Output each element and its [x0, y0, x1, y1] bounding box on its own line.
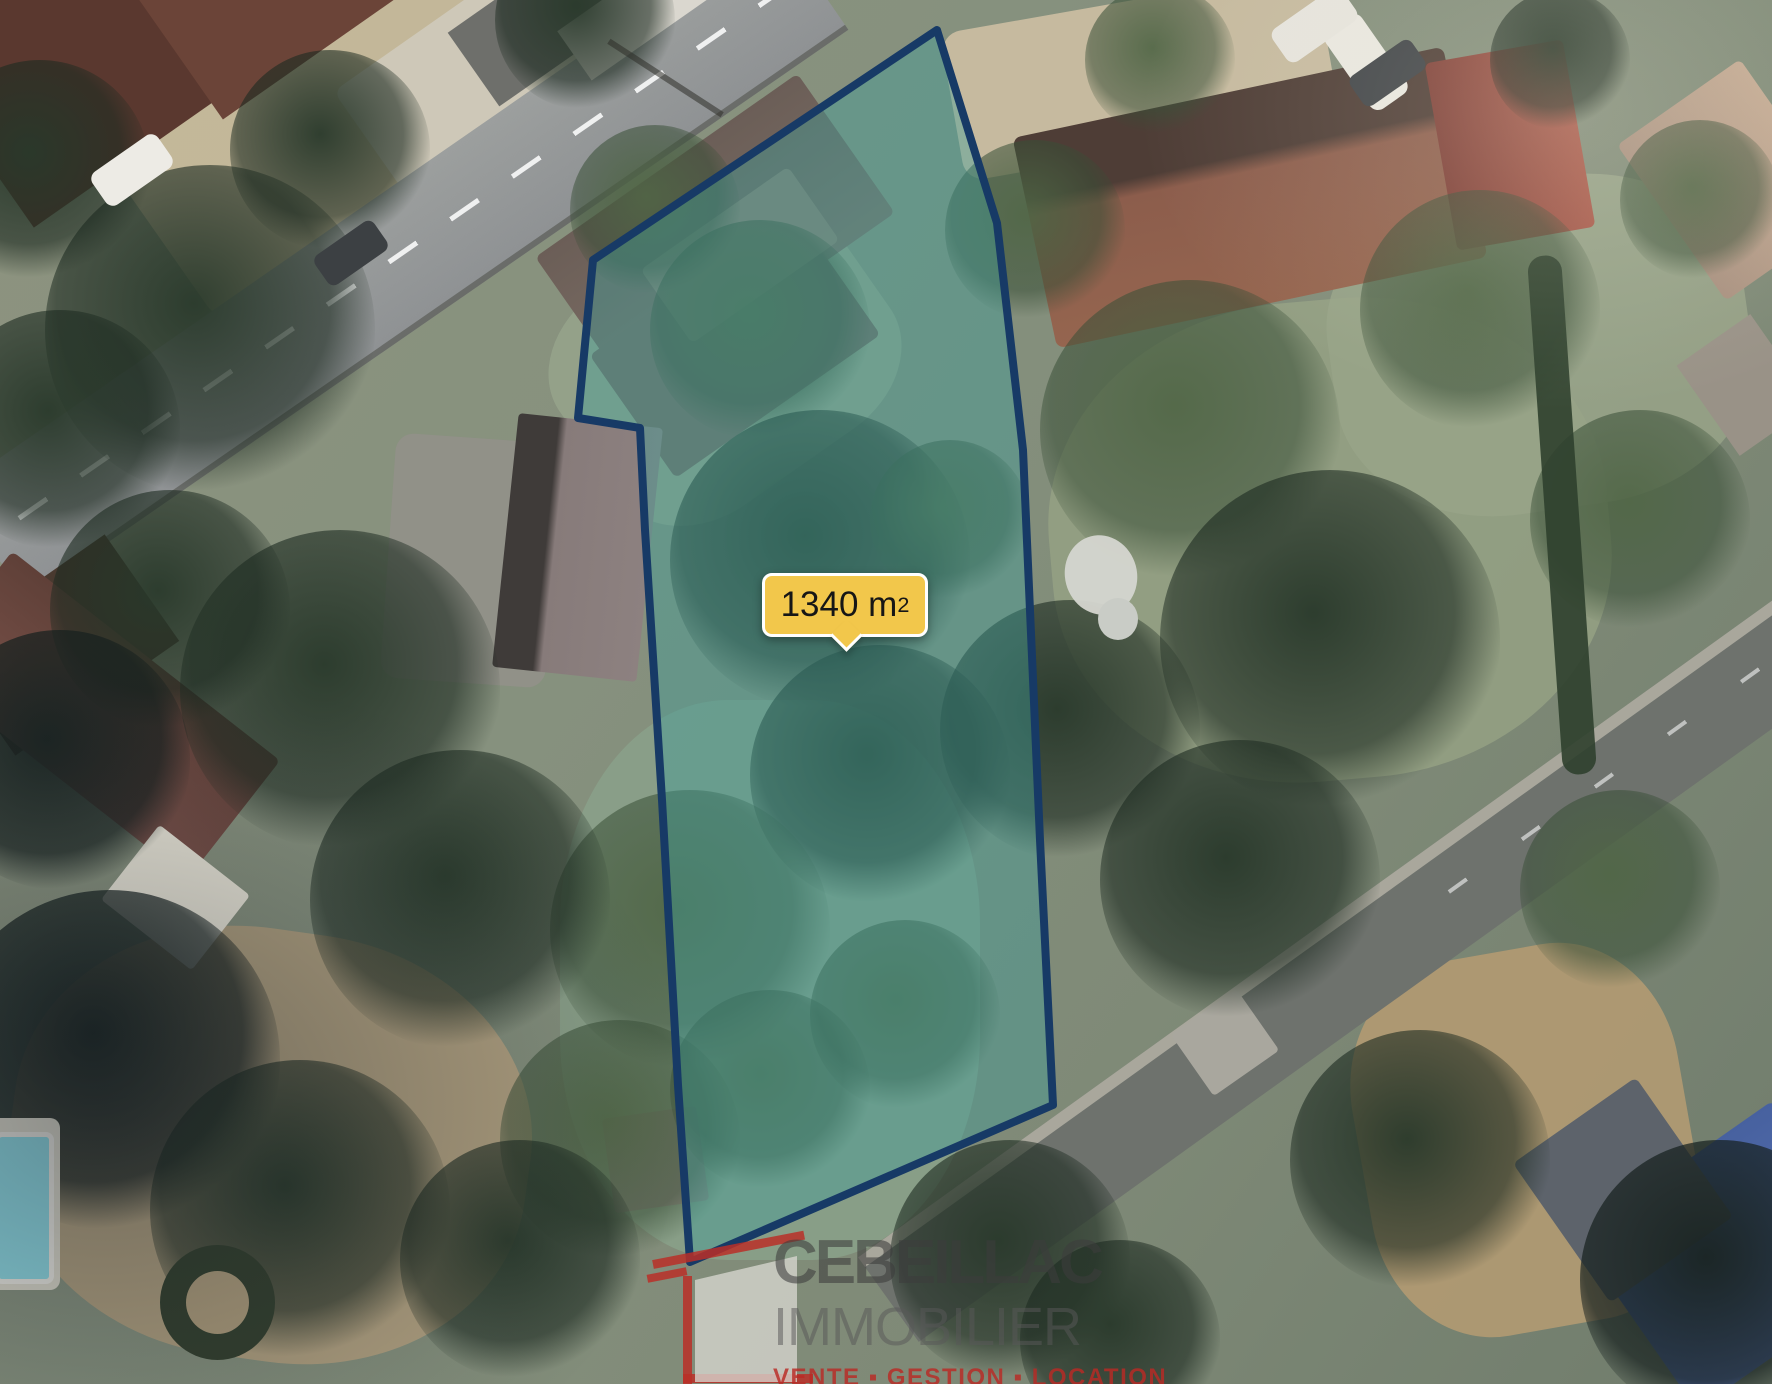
watermark: CEBEILLAC IMMOBILIER VENTE ▪ GESTION ▪ L… — [645, 1234, 1245, 1384]
watermark-text: CEBEILLAC IMMOBILIER VENTE ▪ GESTION ▪ L… — [773, 1232, 1167, 1384]
area-label-superscript: 2 — [897, 592, 909, 618]
logo-wall-line — [683, 1276, 692, 1384]
area-label-text: 1340 m — [781, 585, 898, 625]
agency-tagline: VENTE ▪ GESTION ▪ LOCATION — [773, 1364, 1167, 1384]
satellite-map-view: 1340 m2 CEBEILLAC IMMOBILIER VENTE ▪ GES… — [0, 0, 1772, 1384]
agency-sector: IMMOBILIER — [773, 1300, 1167, 1354]
parcel-boundary[interactable] — [578, 30, 1053, 1262]
logo-eave-line — [647, 1267, 688, 1282]
area-label: 1340 m2 — [762, 573, 928, 637]
agency-name: CEBEILLAC — [773, 1232, 1167, 1294]
parcel-overlay — [0, 0, 1772, 1384]
